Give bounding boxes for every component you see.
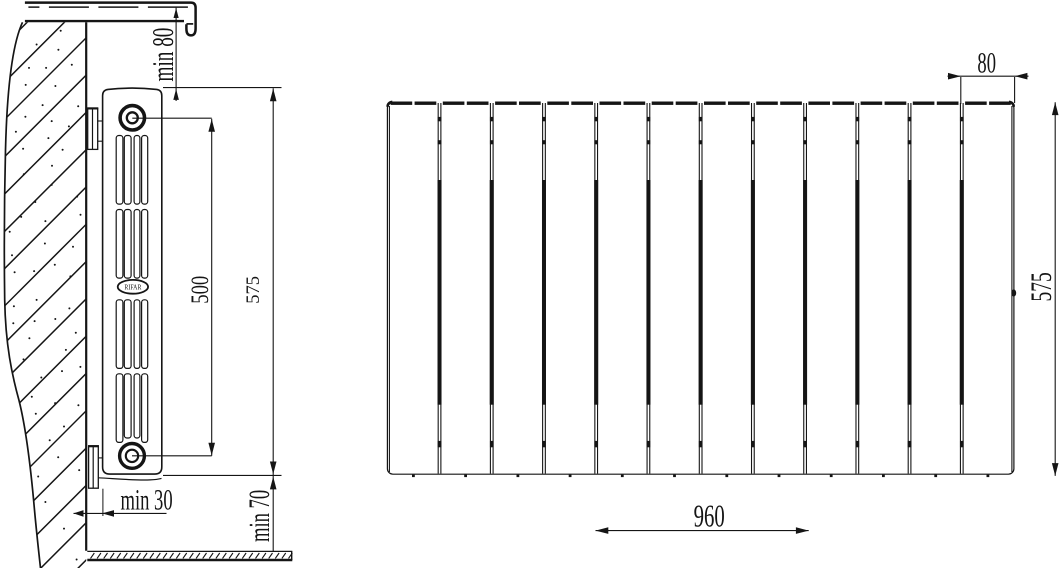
- svg-text:575: 575: [244, 276, 264, 304]
- svg-text:min 30: min 30: [121, 484, 173, 516]
- svg-text:min 80: min 80: [145, 28, 180, 82]
- svg-text:RIFAR: RIFAR: [124, 284, 141, 292]
- svg-text:80: 80: [977, 47, 996, 79]
- svg-text:960: 960: [694, 498, 725, 533]
- svg-text:575: 575: [1025, 272, 1058, 301]
- svg-text:min 70: min 70: [244, 490, 276, 542]
- svg-text:500: 500: [185, 276, 213, 304]
